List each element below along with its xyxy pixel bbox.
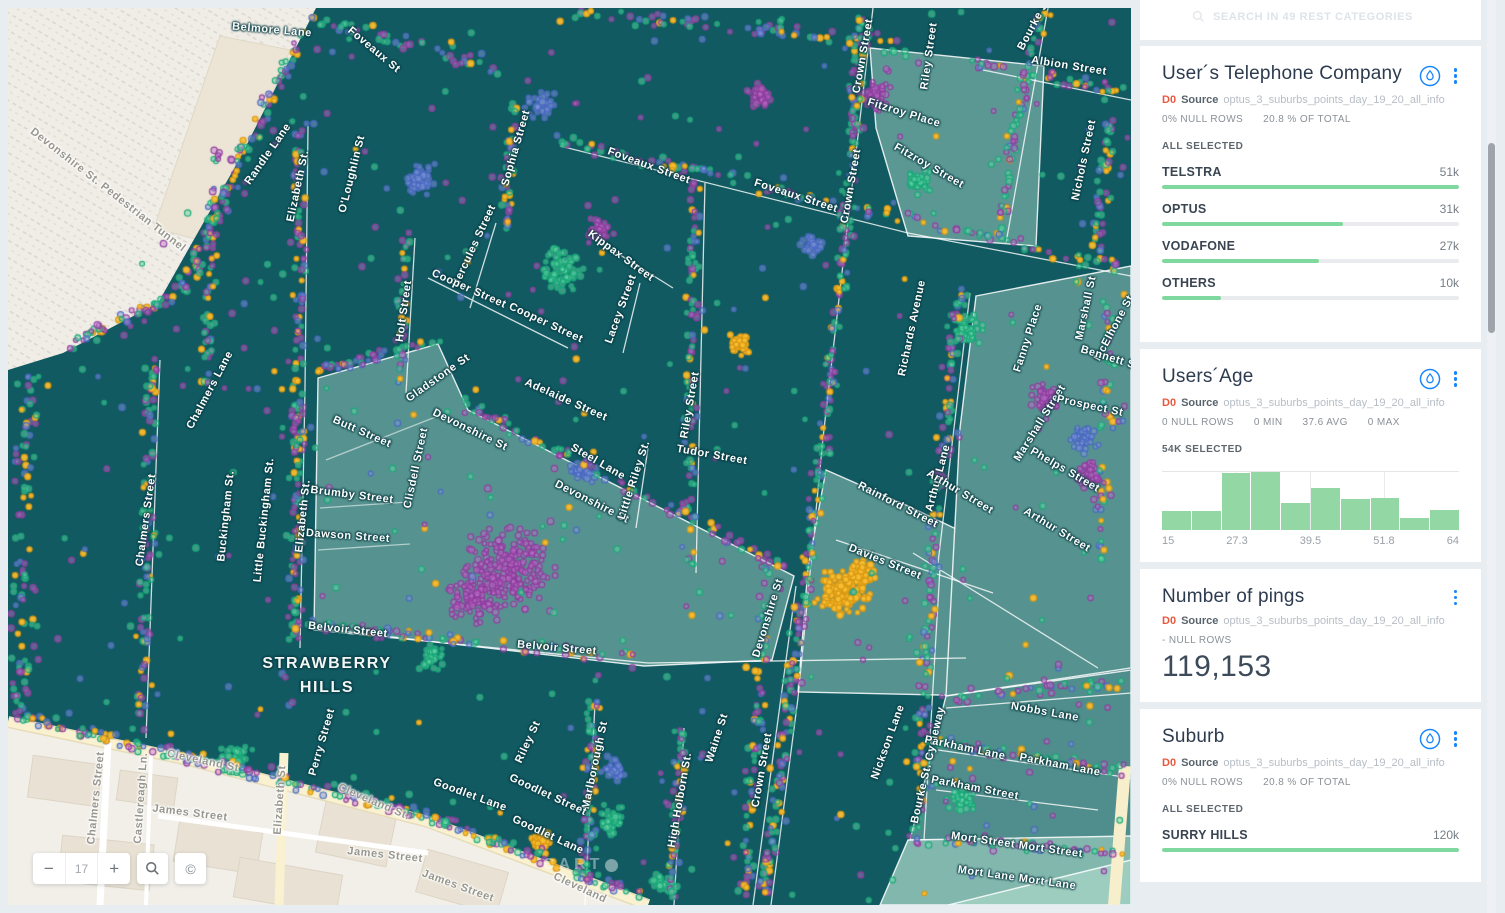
category-list: SURRY HILLS120k: [1162, 828, 1459, 852]
stat-item: 0% NULL ROWS: [1162, 114, 1243, 125]
histogram-bar[interactable]: [1281, 503, 1310, 530]
selection-status: 54K SELECTED: [1162, 444, 1459, 455]
category-bar-fill: [1162, 259, 1319, 263]
widget-card-partial: SEARCH IN 49 REST CATEGORIES: [1140, 0, 1481, 40]
stat-item: 0% NULL ROWS: [1162, 777, 1243, 788]
zoom-control[interactable]: − 17 +: [33, 853, 130, 884]
droplet-filter-icon[interactable]: [1419, 65, 1441, 87]
category-bar-track: [1162, 259, 1459, 263]
histogram-bar[interactable]: [1430, 510, 1459, 530]
stat-item: 37.6 AVG: [1303, 417, 1348, 428]
widget-menu-icon[interactable]: [1452, 588, 1459, 607]
source-tag: D0: [1162, 94, 1176, 106]
category-bar-fill: [1162, 185, 1459, 189]
category-name: SURRY HILLS: [1162, 828, 1248, 842]
source-tag: D0: [1162, 757, 1176, 769]
stat-item: 0 MAX: [1368, 417, 1400, 428]
widget-title: User´s Telephone Company: [1162, 63, 1402, 85]
widget-search-row[interactable]: SEARCH IN 49 REST CATEGORIES: [1140, 0, 1481, 23]
histogram-bar[interactable]: [1162, 511, 1191, 530]
widget-card-users-age: Users´Age D0 Source optus_3_suburbs_poin…: [1140, 349, 1481, 562]
histogram-bar[interactable]: [1341, 499, 1370, 530]
source-dataset: optus_3_suburbs_points_day_19_20_all_inf…: [1223, 397, 1444, 409]
zoom-in-button[interactable]: +: [97, 853, 130, 884]
data-points-layer: [8, 8, 1131, 905]
stat-item: 0 MIN: [1254, 417, 1283, 428]
category-row[interactable]: OTHERS10k: [1162, 276, 1459, 300]
category-bar-track: [1162, 185, 1459, 189]
histogram-bar[interactable]: [1311, 488, 1340, 530]
axis-tick-label: 27.3: [1226, 535, 1247, 547]
histogram-bar[interactable]: [1192, 511, 1221, 530]
age-histogram[interactable]: [1162, 471, 1459, 530]
source-label: Source: [1181, 94, 1218, 106]
category-row[interactable]: SURRY HILLS120k: [1162, 828, 1459, 852]
source-dataset: optus_3_suburbs_points_day_19_20_all_inf…: [1223, 757, 1444, 769]
category-name: TELSTRA: [1162, 165, 1222, 179]
category-bar-track: [1162, 222, 1459, 226]
widget-title: Users´Age: [1162, 366, 1254, 388]
category-name: VODAFONE: [1162, 239, 1235, 253]
droplet-filter-icon[interactable]: [1419, 368, 1441, 390]
widget-title: Number of pings: [1162, 586, 1304, 608]
widget-search-hint: SEARCH IN 49 REST CATEGORIES: [1213, 11, 1413, 23]
category-row[interactable]: VODAFONE27k: [1162, 239, 1459, 263]
category-value: 10k: [1440, 276, 1459, 290]
category-bar-fill: [1162, 222, 1343, 226]
droplet-filter-icon[interactable]: [1419, 728, 1441, 750]
widget-menu-icon[interactable]: [1452, 369, 1459, 388]
category-name: OPTUS: [1162, 202, 1207, 216]
widget-menu-icon[interactable]: [1452, 729, 1459, 748]
widget-stats: 0% NULL ROWS20.8 % OF TOTAL: [1162, 114, 1459, 125]
search-icon: [1192, 10, 1205, 23]
category-value: 31k: [1440, 202, 1459, 216]
formula-value: 119,153: [1162, 650, 1459, 684]
category-row[interactable]: OPTUS31k: [1162, 202, 1459, 226]
source-label: Source: [1181, 397, 1218, 409]
histogram-bar[interactable]: [1251, 472, 1280, 530]
selection-status: ALL SELECTED: [1162, 141, 1459, 152]
axis-tick-label: 39.5: [1300, 535, 1321, 547]
histogram-ticks: 1527.339.551.864: [1162, 535, 1459, 547]
source-dataset: optus_3_suburbs_points_day_19_20_all_inf…: [1223, 94, 1444, 106]
map[interactable]: Belmore LaneFoveaux StRandle LaneElizabe…: [8, 8, 1131, 905]
category-list: TELSTRA51kOPTUS31kVODAFONE27kOTHERS10k: [1162, 165, 1459, 300]
widget-stats: 0% NULL ROWS20.8 % OF TOTAL: [1162, 777, 1459, 788]
category-bar-fill: [1162, 848, 1459, 852]
histogram-bar[interactable]: [1222, 473, 1251, 530]
sidebar-scrollbar-thumb[interactable]: [1488, 143, 1495, 333]
source-tag: D0: [1162, 615, 1176, 627]
category-name: OTHERS: [1162, 276, 1216, 290]
widget-stats: 0 NULL ROWS0 MIN37.6 AVG0 MAX: [1162, 417, 1459, 428]
null-rows-label: - NULL ROWS: [1162, 635, 1459, 646]
category-value: 120k: [1433, 828, 1459, 842]
widget-menu-icon[interactable]: [1452, 66, 1459, 85]
widget-card-number-of-pings: Number of pings D0 Source optus_3_suburb…: [1140, 569, 1481, 702]
axis-tick-label: 51.8: [1373, 535, 1394, 547]
attribution-button[interactable]: ©: [175, 853, 206, 884]
zoom-level: 17: [65, 853, 98, 884]
category-value: 27k: [1440, 239, 1459, 253]
selection-status: ALL SELECTED: [1162, 804, 1459, 815]
category-row[interactable]: TELSTRA51k: [1162, 165, 1459, 189]
search-button[interactable]: [137, 853, 168, 884]
source-dataset: optus_3_suburbs_points_day_19_20_all_inf…: [1223, 615, 1444, 627]
source-tag: D0: [1162, 397, 1176, 409]
source-label: Source: [1181, 615, 1218, 627]
sidebar-scrollbar-track[interactable]: [1487, 0, 1496, 913]
search-icon: [145, 861, 160, 876]
histogram-bar[interactable]: [1400, 518, 1429, 530]
source-label: Source: [1181, 757, 1218, 769]
axis-tick-label: 64: [1447, 535, 1459, 547]
axis-tick-label: 15: [1162, 535, 1174, 547]
stat-item: 20.8 % OF TOTAL: [1263, 777, 1351, 788]
zoom-out-button[interactable]: −: [33, 853, 65, 884]
category-value: 51k: [1440, 165, 1459, 179]
category-bar-fill: [1162, 296, 1221, 300]
widget-title: Suburb: [1162, 726, 1224, 748]
stat-item: 0 NULL ROWS: [1162, 417, 1234, 428]
category-bar-track: [1162, 848, 1459, 852]
histogram-bar[interactable]: [1371, 498, 1400, 530]
widget-card-telephone-company: User´s Telephone Company D0 Source optus…: [1140, 46, 1481, 342]
stat-item: 20.8 % OF TOTAL: [1263, 114, 1351, 125]
widget-card-suburb: Suburb D0 Source optus_3_suburbs_points_…: [1140, 709, 1481, 882]
widgets-sidebar: SEARCH IN 49 REST CATEGORIES User´s Tele…: [1140, 0, 1481, 913]
category-bar-track: [1162, 296, 1459, 300]
